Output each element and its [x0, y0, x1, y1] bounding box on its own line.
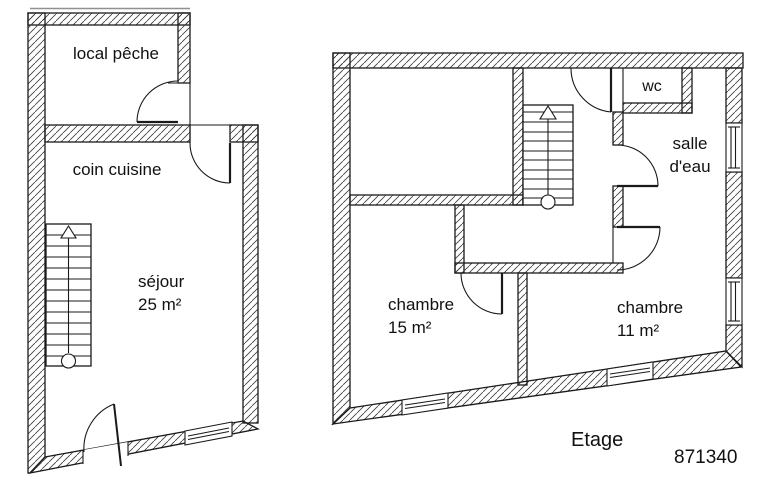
- wall: [45, 125, 190, 142]
- chambre-15-window: [402, 393, 448, 415]
- room-label-chambre-15: chambre 15 m²: [388, 293, 454, 339]
- room-name-line1: salle: [650, 132, 730, 155]
- room-area: 25 m²: [138, 293, 184, 316]
- wall: [518, 273, 527, 385]
- room-label-sejour: séjour 25 m²: [138, 270, 184, 316]
- room-label-chambre-11: chambre 11 m²: [617, 296, 683, 342]
- stairs-start-marker: [62, 354, 76, 368]
- sejour-stairs: [46, 224, 91, 368]
- wall: [333, 53, 350, 424]
- wall: [513, 68, 523, 205]
- chambre-11-side-window: [726, 278, 742, 325]
- floor-plan-drawing: [0, 0, 768, 486]
- room-name: séjour: [138, 270, 184, 293]
- wall: [333, 53, 743, 68]
- wall: [28, 13, 190, 25]
- wall: [28, 13, 45, 473]
- wall: [350, 195, 523, 205]
- floor-title: Etage: [571, 429, 623, 452]
- wall: [455, 263, 623, 273]
- room-label-local-peche: local pêche: [40, 42, 192, 65]
- sejour-window: [185, 422, 232, 445]
- room-area: 15 m²: [388, 316, 454, 339]
- wall: [726, 68, 742, 123]
- chambre-15-door: [461, 273, 502, 314]
- wall: [613, 112, 623, 145]
- etage-stairs: [523, 105, 573, 209]
- wc-door: [571, 68, 611, 112]
- wall: [333, 351, 741, 424]
- room-label-coin-cuisine: coin cuisine: [41, 158, 193, 181]
- room-name-line2: d'eau: [650, 155, 730, 178]
- wall: [726, 172, 742, 278]
- stairs-start-marker: [541, 195, 555, 209]
- room-label-salle-eau: salle d'eau: [650, 132, 730, 178]
- plan-reference-number: 871340: [674, 446, 737, 469]
- upper-floor-plan: [333, 53, 743, 424]
- wall: [623, 103, 692, 113]
- wall: [243, 125, 258, 423]
- room-label-wc: wc: [630, 75, 674, 98]
- room-area: 11 m²: [617, 319, 683, 342]
- coin-cuisine-door: [190, 143, 230, 183]
- chambre-11-window: [607, 362, 653, 386]
- ground-floor-plan: [28, 9, 258, 474]
- floor-plan-canvas: local pêche coin cuisine séjour 25 m² wc…: [0, 0, 768, 486]
- wall: [613, 186, 623, 227]
- room-name: chambre: [617, 296, 683, 319]
- local-peche-door: [137, 81, 178, 122]
- room-name: chambre: [388, 293, 454, 316]
